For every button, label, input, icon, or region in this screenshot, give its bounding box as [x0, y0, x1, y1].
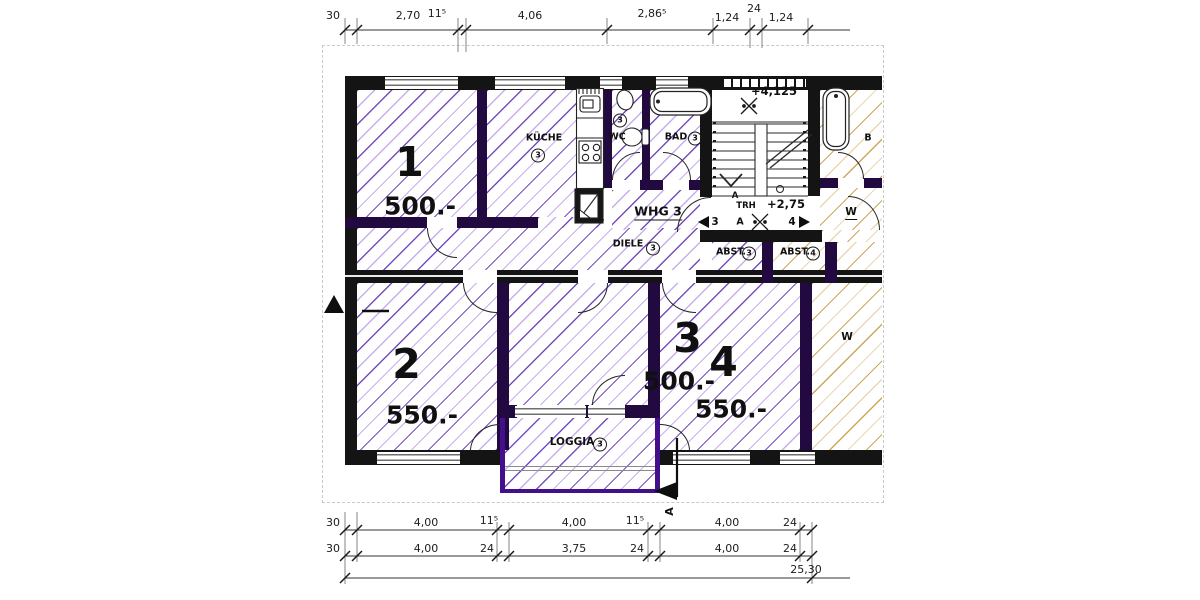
- room-1-price: 500.-: [384, 192, 456, 221]
- apt4-floor-strip: [837, 242, 882, 270]
- wall: [696, 270, 882, 283]
- loggia-number: 3: [593, 434, 607, 453]
- dim-label: 1,24: [715, 11, 740, 24]
- stair-arrow-left: [698, 216, 709, 228]
- apt4-room-label-cut: W: [841, 331, 853, 343]
- hallway-number: 3: [646, 238, 660, 257]
- loggia-wall: [500, 489, 660, 493]
- circled-number: 3: [688, 131, 702, 145]
- bath-label: BAD: [665, 132, 687, 143]
- wall: [477, 90, 487, 217]
- dim-label: 4,06: [518, 9, 543, 22]
- wall: [497, 405, 517, 418]
- wall: [864, 178, 882, 188]
- dim-label: 4,00: [414, 516, 439, 529]
- wc-label: WC: [608, 132, 625, 143]
- dim-label: 11⁵: [626, 514, 644, 527]
- apt4-bath-label-cut: B: [864, 133, 871, 144]
- window: [673, 452, 750, 464]
- wall: [648, 283, 660, 418]
- loggia-wall: [500, 418, 505, 492]
- window: [385, 77, 458, 89]
- room-3-price: 500.-: [643, 367, 715, 396]
- dim-label: 24: [630, 542, 644, 555]
- window: [780, 452, 815, 464]
- wall: [808, 76, 820, 196]
- wall: [497, 270, 578, 283]
- kitchen-opening-floor: [538, 217, 604, 228]
- room-4-price: 550.-: [695, 395, 767, 424]
- section-letter-stair: A: [732, 191, 739, 201]
- level-upper: +4,125: [751, 84, 797, 98]
- window: [600, 77, 622, 89]
- level-lower: +2,75: [767, 197, 805, 211]
- balcony-door-sill: [588, 406, 625, 417]
- dim-label: 30: [326, 516, 340, 529]
- dim-label: 24: [783, 542, 797, 555]
- loggia-floor: [505, 418, 655, 489]
- dim-label: 4,00: [562, 516, 587, 529]
- wall: [825, 242, 837, 283]
- stair-floor-from: 3: [711, 216, 718, 228]
- dim-label: 3,75: [562, 542, 587, 555]
- wall: [820, 178, 838, 188]
- stair-arrow-right: [799, 216, 810, 228]
- wall: [689, 180, 700, 190]
- wall: [457, 217, 538, 228]
- hallway-label: DIELE: [613, 239, 643, 250]
- window: [515, 406, 586, 417]
- wall: [625, 405, 660, 418]
- dim-label: 4,00: [715, 542, 740, 555]
- dim-label: 4,00: [715, 516, 740, 529]
- window: [656, 77, 688, 89]
- dim-label-total: 25,30: [790, 563, 822, 576]
- storage-3-number: 3: [742, 243, 756, 262]
- dim-label: 2,86⁵: [638, 7, 667, 20]
- floor-plan: 30 2,70 11⁵ 4,06 2,86⁵ 1,24 24 1,24 30 4…: [0, 0, 1200, 600]
- window: [377, 452, 460, 464]
- circled-number: 3: [646, 241, 660, 255]
- storage-4-number: 4: [806, 243, 820, 262]
- apt4-hall-floor-2: [822, 230, 882, 242]
- kitchen-label: KÜCHE: [526, 133, 562, 144]
- circled-number: 4: [806, 246, 820, 260]
- section-letter-mid: A: [736, 217, 743, 228]
- stair-floor-to: 4: [788, 216, 795, 228]
- dim-label: 24: [747, 2, 761, 15]
- circled-number: 3: [531, 148, 545, 162]
- wall: [345, 270, 463, 283]
- wall: [642, 90, 650, 180]
- wall: [608, 270, 662, 283]
- window: [495, 77, 565, 89]
- room-2-price: 550.-: [386, 401, 458, 430]
- wall: [800, 283, 812, 450]
- bath-number: 3: [688, 128, 702, 147]
- circled-number: 3: [742, 246, 756, 260]
- section-letter-bottom: A: [663, 507, 676, 516]
- dim-label: 11⁵: [480, 514, 498, 527]
- apt4-room-floor: [812, 283, 882, 450]
- wc-number: 3: [613, 110, 627, 129]
- kitchen-number: 3: [531, 145, 545, 164]
- room-3-number: 3: [673, 314, 701, 362]
- room-2-number: 2: [392, 340, 420, 388]
- stairwell-label: TRH: [736, 201, 755, 211]
- dim-label: 24: [480, 542, 494, 555]
- dim-label: 11⁵: [428, 7, 446, 20]
- loggia-edge-lines: [505, 466, 655, 471]
- dim-label: 4,00: [414, 542, 439, 555]
- wall: [640, 180, 663, 190]
- apartment-3-label: WHG 3: [634, 204, 682, 221]
- circled-number: 3: [593, 437, 607, 451]
- dim-label: 30: [326, 9, 340, 22]
- dim-label: 1,24: [769, 11, 794, 24]
- wall: [762, 242, 773, 283]
- apt4-label-cut: W: [845, 206, 857, 220]
- wall: [700, 230, 822, 242]
- dim-label: 30: [326, 542, 340, 555]
- dim-label: 2,70: [396, 9, 421, 22]
- loggia-label: LOGGIA: [550, 436, 595, 448]
- room-1-number: 1: [395, 138, 423, 186]
- circled-number: 3: [613, 113, 627, 127]
- room-4-number: 4: [709, 338, 737, 386]
- dim-label: 24: [783, 516, 797, 529]
